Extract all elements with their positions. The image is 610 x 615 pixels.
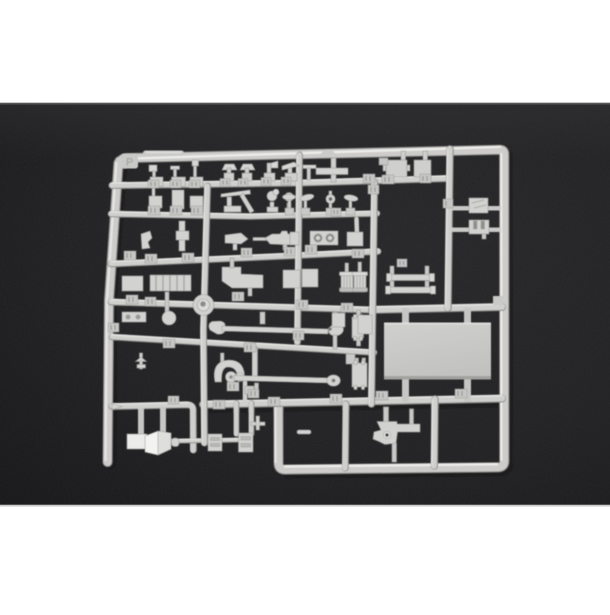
svg-text:P: P — [126, 157, 133, 169]
